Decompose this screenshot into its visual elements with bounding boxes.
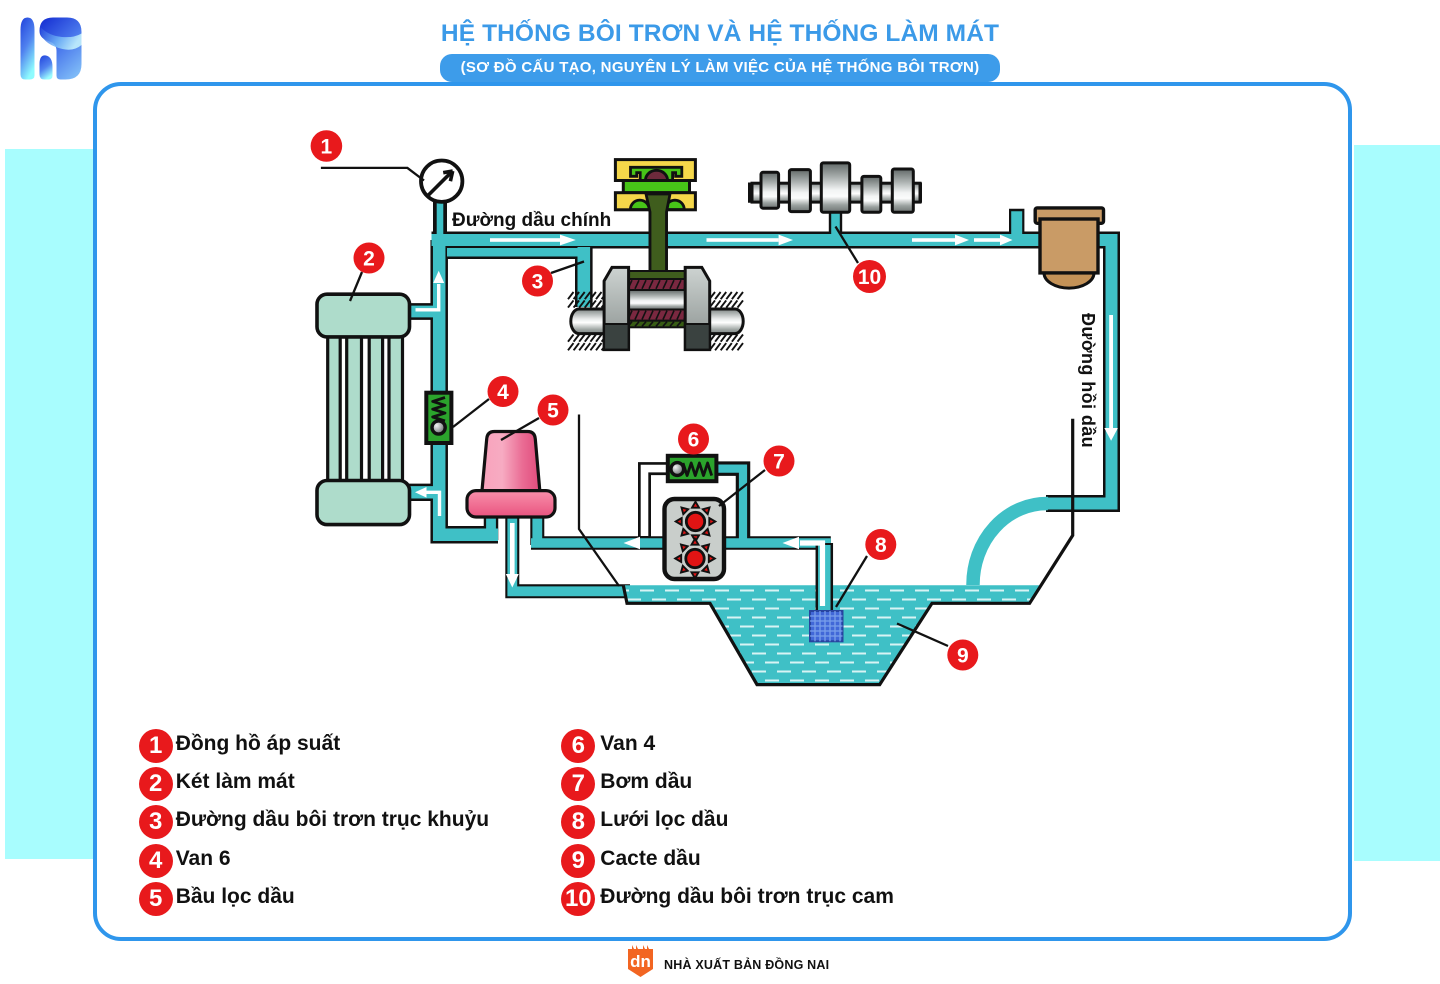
svg-text:4: 4 xyxy=(497,381,509,404)
svg-text:8: 8 xyxy=(875,534,887,557)
svg-text:2: 2 xyxy=(363,248,375,271)
svg-text:5: 5 xyxy=(547,400,559,423)
svg-text:7: 7 xyxy=(773,451,785,474)
svg-text:3: 3 xyxy=(532,271,544,294)
svg-text:Đường dầu chính: Đường dầu chính xyxy=(452,210,611,231)
svg-text:6: 6 xyxy=(688,429,700,452)
svg-text:Đường hồi dầu: Đường hồi dầu xyxy=(1078,313,1098,448)
svg-text:1: 1 xyxy=(321,136,333,159)
svg-text:10: 10 xyxy=(858,266,881,289)
svg-text:dn: dn xyxy=(630,952,651,971)
svg-text:9: 9 xyxy=(957,645,969,668)
